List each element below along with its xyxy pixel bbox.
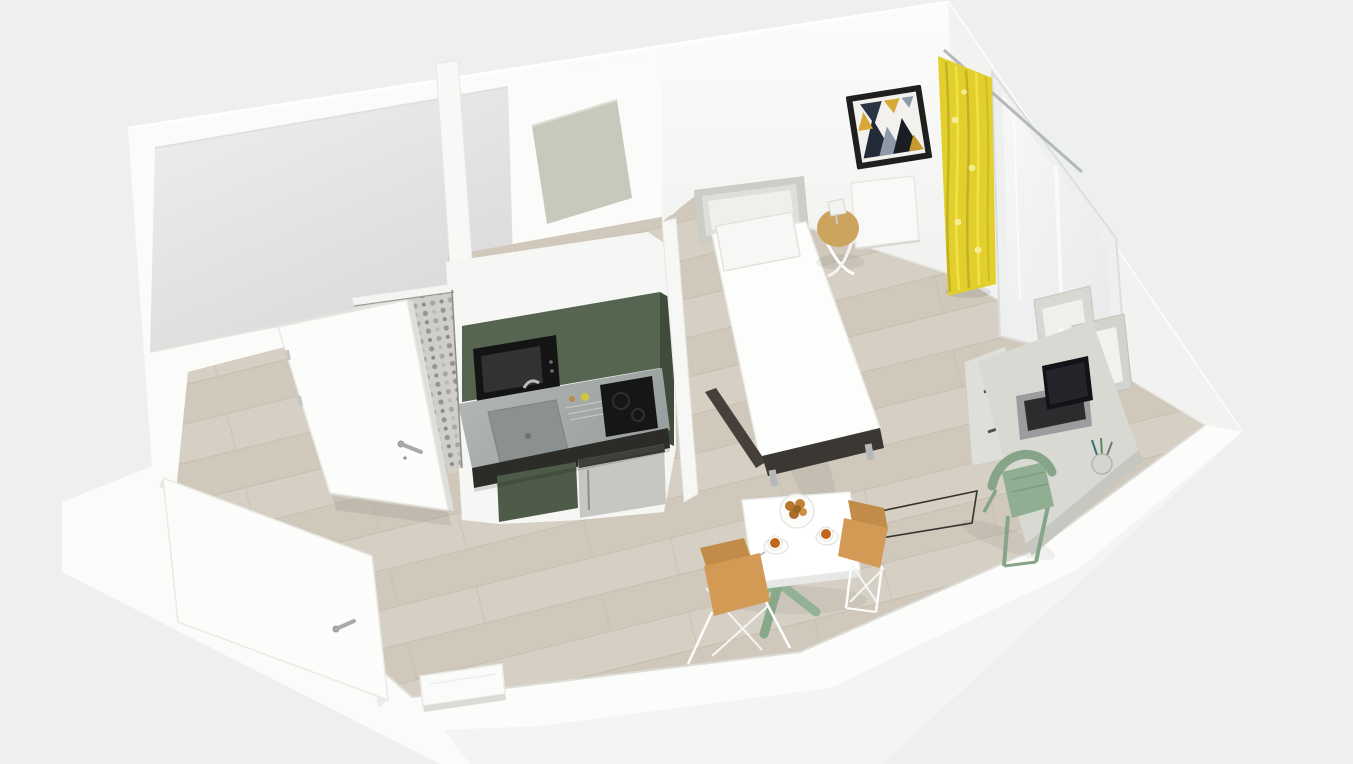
door-keyhole — [403, 456, 406, 459]
fruit — [569, 396, 575, 402]
lemon — [581, 393, 589, 401]
curtain — [938, 56, 996, 298]
floorplan-stage: TV — [0, 0, 1353, 764]
kitchenette — [446, 218, 698, 524]
cooktop — [600, 376, 658, 437]
cookie-plate — [780, 494, 814, 528]
radiator-panel — [851, 176, 920, 249]
wall-art — [846, 85, 933, 170]
floorplan-render: TV — [0, 0, 1353, 764]
